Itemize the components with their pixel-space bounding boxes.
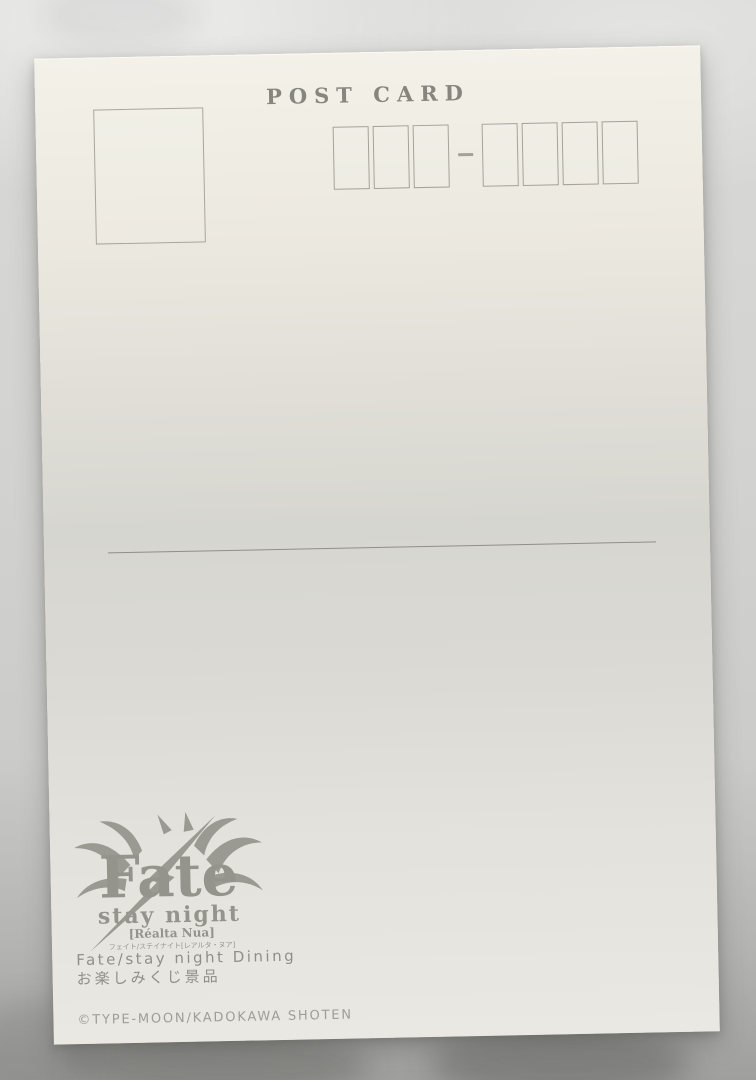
postal-code-digit-box <box>562 121 599 185</box>
stamp-box <box>93 107 206 244</box>
postal-code-digit-box <box>373 125 410 189</box>
photo-background: POST CARD Fate st <box>0 0 756 1080</box>
postal-code-dash <box>458 153 473 156</box>
footer-text-block: Fate/stay night Dining お楽しみくじ景品 ©TYPE-MO… <box>76 946 353 1029</box>
postal-code-digit-box <box>482 123 519 187</box>
copyright-line: ©TYPE-MOON/KADOKAWA SHOTEN <box>77 1008 353 1029</box>
background-shadow-top-left <box>40 0 200 50</box>
logo-edition-text: [Réalta Nua] <box>128 925 215 941</box>
postal-code-digit-box <box>413 124 450 188</box>
postcard-back: POST CARD Fate st <box>34 45 720 1044</box>
fate-stay-night-logo: Fate stay night [Réalta Nua] フェイト/ステイナイト… <box>67 810 270 954</box>
address-message-divider <box>108 541 656 553</box>
postal-code-digit-box <box>602 121 639 185</box>
postal-code-digit-box <box>522 122 559 186</box>
postal-code-row <box>333 121 643 190</box>
postal-code-digit-box <box>333 126 370 190</box>
